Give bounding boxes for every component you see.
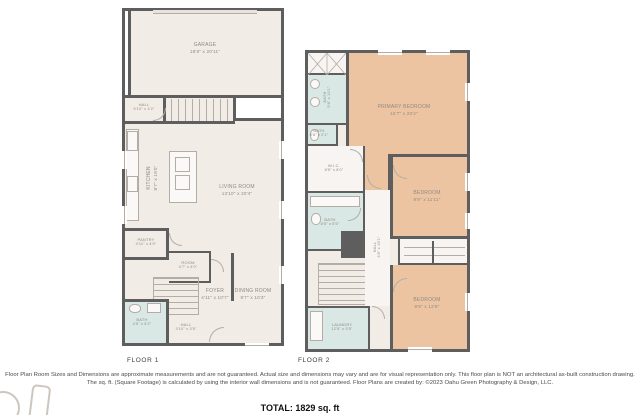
room-label-garage: GARAGE 18'8" x 20'11" <box>190 42 220 54</box>
kitchen-fridge <box>127 131 138 151</box>
mechanical-block <box>341 231 365 258</box>
window-f2-top1 <box>378 50 402 55</box>
disclaimer-line2: The sq. ft. (Square Footage) is calculat… <box>0 380 640 386</box>
dining-wall <box>231 253 234 301</box>
toilet-floor1 <box>129 304 141 313</box>
primary-bath-sink1 <box>310 79 320 89</box>
room-label-kitchen: KITCHEN 8'7" x 19'0" <box>146 165 158 190</box>
window-f1-right1 <box>279 141 284 159</box>
window-f2-bottom <box>408 347 432 352</box>
window-f1-right3 <box>279 266 284 284</box>
room-label-living: LIVING ROOM 13'10" x 20'4" <box>219 184 255 196</box>
window-f1-left2 <box>122 206 127 224</box>
room-label-bedroom3: BEDROOM 9'9" x 12'6" <box>413 297 440 309</box>
garage-door <box>153 10 257 14</box>
floor-plan-page: GARAGE 18'8" x 20'11" HALL 5'10" x 4'2" … <box>0 0 640 415</box>
window-f1-left1 <box>122 151 127 169</box>
room-label-primary-bedroom: PRIMARY BEDROOM 15'7" x 20'2" <box>378 104 431 116</box>
room-label-room: ROOM 4'7" x 4'0" <box>179 260 198 270</box>
room-label-dining: DINING ROOM 9'7" x 10'3" <box>235 288 272 300</box>
closet-divider <box>432 241 434 263</box>
laundry-door-arc <box>372 306 385 319</box>
window-f1-right2 <box>279 201 284 219</box>
floor2-caption: FLOOR 2 <box>254 357 374 364</box>
total-sqft: TOTAL: 1829 sq. ft <box>0 403 620 413</box>
floor1-caption: FLOOR 1 <box>83 357 203 364</box>
room-label-hall2: HALL 3'10" x 3'5" <box>175 322 196 332</box>
window-f2-top2 <box>426 50 450 55</box>
kitchen-sink <box>127 176 138 192</box>
disclaimer-line1: Floor Plan Room Sizes and Dimensions are… <box>0 372 640 378</box>
entry-door-arc <box>209 327 224 342</box>
closet-door-arc <box>211 259 224 272</box>
exterior-notch <box>233 98 281 121</box>
window-f2-right4 <box>465 293 470 311</box>
room-label-pantry: PANTRY 4'11" x 4'9" <box>136 237 157 247</box>
window-f2-right1 <box>465 83 470 101</box>
bathtub <box>310 196 360 207</box>
kitchen-stove2 <box>175 175 190 190</box>
logo-shape-icon <box>28 384 52 415</box>
room-label-bath1: BATH 4'5" x 5'2" <box>133 317 152 327</box>
pantry-door-arc <box>169 233 182 246</box>
room-label-primary-bath: BATH 5'6" x 10'1" <box>322 86 332 107</box>
room-label-hall3: HALL 3'6" x 16'1" <box>372 236 382 257</box>
closet-shelf-line2 <box>404 255 465 256</box>
hall-bath-toilet <box>311 213 321 225</box>
stairs-floor2 <box>318 263 368 305</box>
stairs-floor1-upper <box>171 99 232 123</box>
primary-bath-sink2 <box>310 97 320 107</box>
sink-floor1 <box>147 303 161 313</box>
garage-inset <box>125 11 131 95</box>
bedroom-closets <box>398 239 467 265</box>
room-label-hall1: HALL 5'10" x 4'2" <box>133 102 154 112</box>
closet-hatch-icon <box>308 53 346 75</box>
washer-dryer <box>310 311 323 341</box>
window-f1-bottom <box>245 343 269 348</box>
room-label-bedroom2: BEDROOM 9'9" x 11'11" <box>413 190 440 202</box>
logo-circle-icon <box>0 391 20 415</box>
primary-closet <box>308 53 346 75</box>
room-label-foyer: FOYER 4'11" x 10'7" <box>201 288 228 300</box>
room-label-wc: BATH 5'8" x 2'1" <box>310 128 329 138</box>
closet-shelf-line1 <box>404 247 465 248</box>
window-f2-right2 <box>465 173 470 191</box>
window-f2-right3 <box>465 213 470 229</box>
room-label-laundry: LAUNDRY 12'5" x 5'5" <box>331 322 352 332</box>
hall1-bottom-wall <box>125 121 235 124</box>
room-label-wic: W.I.C. 8'5" x 8'0" <box>325 163 344 173</box>
kitchen-stove <box>175 157 190 172</box>
room-label-hall-bath: BATH 8'5" x 5'5" <box>321 217 340 227</box>
